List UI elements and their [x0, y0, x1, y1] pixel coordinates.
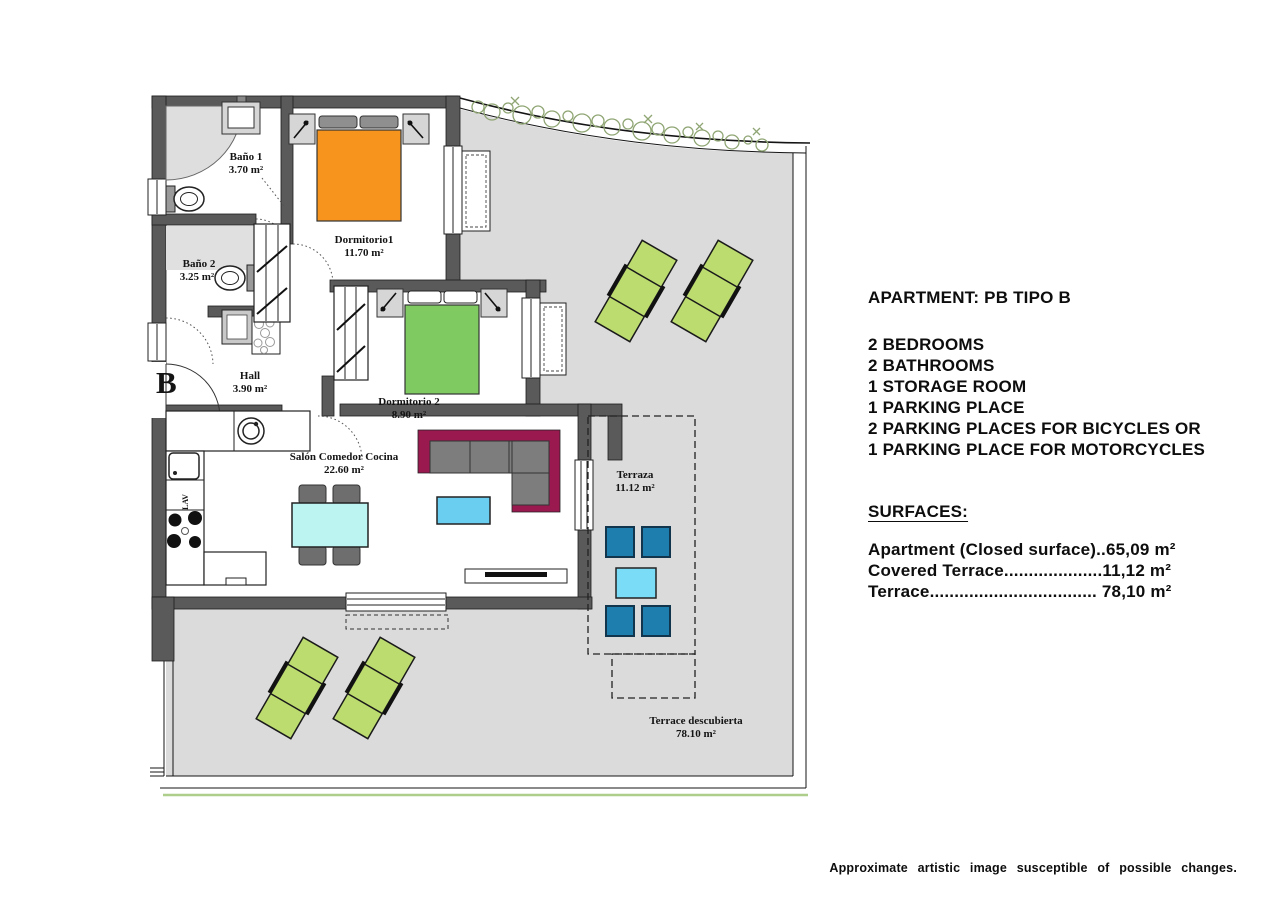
window-left-1 — [148, 179, 166, 215]
disclaimer-note: Approximate artistic image susceptible o… — [829, 861, 1237, 875]
floor-plan-sheet: LAV — [0, 0, 1280, 905]
room-area-terrace-open: 78.10 m² — [676, 728, 717, 740]
nightstand — [377, 289, 403, 317]
bed-dorm2 — [405, 305, 479, 394]
nightstand — [289, 114, 315, 144]
room-area-terraza: 11.12 m² — [615, 482, 655, 494]
feature-item: 1 STORAGE ROOM — [868, 376, 1243, 397]
surface-item: Terrace.................................… — [868, 581, 1243, 602]
unit-letter: B — [156, 365, 177, 400]
room-label-hall: Hall — [240, 370, 260, 382]
feature-item: 1 PARKING PLACE — [868, 397, 1243, 418]
tv-unit — [465, 569, 567, 583]
window-left-2 — [148, 323, 166, 361]
window-dorm2 — [522, 298, 566, 378]
info-panel: APARTMENT: PB TIPO B 2 BEDROOMS 2 BATHRO… — [868, 287, 1243, 602]
apartment-title: APARTMENT: PB TIPO B — [868, 287, 1243, 308]
room-label-dorm1: Dormitorio1 — [335, 234, 394, 246]
room-label-bano2: Baño 2 — [183, 258, 216, 270]
bedroom2-furniture — [377, 289, 507, 394]
sink — [222, 102, 260, 134]
dining-table — [292, 503, 368, 547]
nightstand — [481, 289, 507, 317]
dining-chair — [299, 485, 326, 504]
dining-chair — [333, 485, 360, 504]
feature-item: 1 PARKING PLACE FOR MOTORCYCLES — [868, 439, 1243, 460]
bed-dorm1 — [317, 130, 401, 221]
kitchen-sink-icon — [169, 453, 199, 479]
surface-item: Covered Terrace....................11,12… — [868, 560, 1243, 581]
kitchen: LAV — [166, 411, 310, 585]
feature-list: 2 BEDROOMS 2 BATHROOMS 1 STORAGE ROOM 1 … — [868, 334, 1243, 460]
room-label-bano1: Baño 1 — [230, 151, 263, 163]
room-area-bano2: 3.25 m² — [180, 271, 215, 283]
room-area-dorm2: 8.90 m² — [392, 409, 427, 421]
feature-item: 2 BEDROOMS — [868, 334, 1243, 355]
dining-chair — [299, 546, 326, 565]
room-area-dorm1: 11.70 m² — [344, 247, 384, 259]
surfaces-heading: SURFACES: — [868, 501, 1243, 522]
window-dorm1 — [444, 146, 490, 234]
pillow — [360, 116, 398, 128]
toilet-icon — [215, 265, 256, 291]
wardrobe-hall — [254, 224, 290, 322]
room-area-bano1: 3.70 m² — [229, 164, 264, 176]
room-label-terrace-open: Terrace descubierta — [649, 715, 743, 727]
nightstand — [403, 114, 429, 144]
washing-machine-icon — [238, 418, 264, 444]
surfaces-list: Apartment (Closed surface)..65,09 m² Cov… — [868, 539, 1243, 602]
room-area-hall: 3.90 m² — [233, 383, 268, 395]
room-label-dorm2: Dormitorio 2 — [378, 396, 440, 408]
wardrobe-dorm2 — [334, 286, 368, 380]
room-label-terraza: Terraza — [617, 469, 654, 481]
room-label-salon: Salón Comedor Cocina — [290, 451, 399, 463]
dishwasher-label: LAV — [181, 494, 190, 510]
coffee-table — [437, 497, 490, 524]
room-area-salon: 22.60 m² — [324, 464, 365, 476]
pillow — [408, 291, 441, 303]
dining-chair — [333, 546, 360, 565]
base-cabinet — [204, 552, 266, 585]
pillow — [319, 116, 357, 128]
feature-item: 2 BATHROOMS — [868, 355, 1243, 376]
feature-item: 2 PARKING PLACES FOR BICYCLES OR — [868, 418, 1243, 439]
salon-sliding-door — [575, 460, 593, 530]
bedroom1-furniture — [289, 114, 429, 221]
surface-item: Apartment (Closed surface)..65,09 m² — [868, 539, 1243, 560]
toilet-icon — [166, 186, 204, 212]
pillow — [444, 291, 477, 303]
terrace-table — [616, 568, 656, 598]
